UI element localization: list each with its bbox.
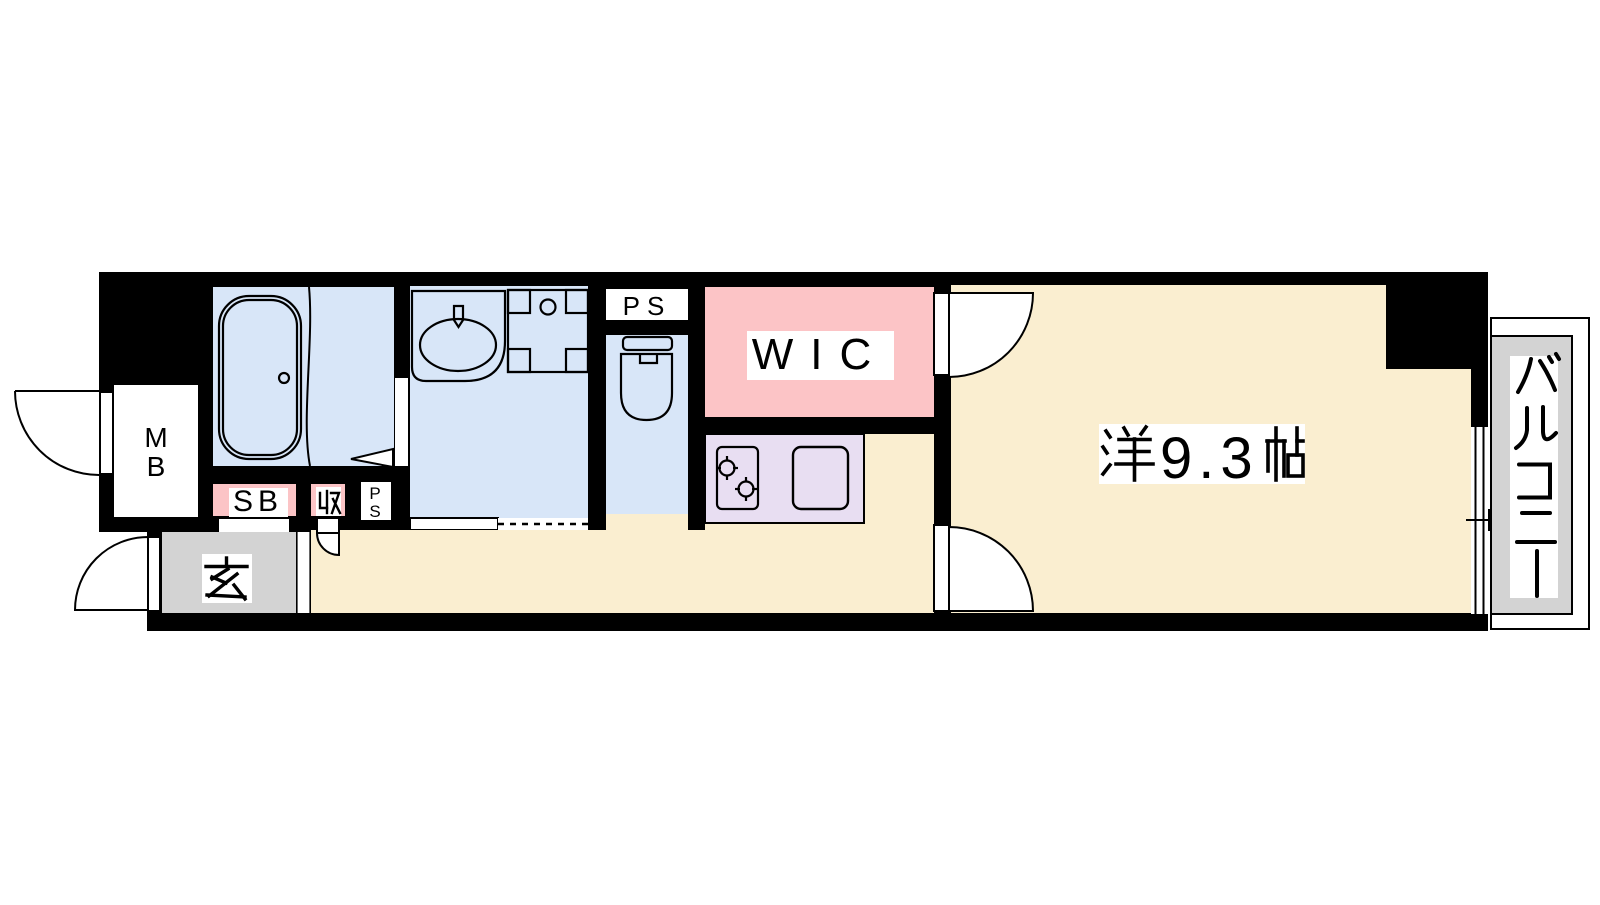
svg-text:M: M: [144, 422, 167, 453]
svg-text:WIC: WIC: [752, 330, 889, 379]
svg-text:PS: PS: [623, 291, 672, 321]
svg-text:S: S: [369, 502, 380, 521]
svg-text:9.3: 9.3: [1160, 426, 1259, 491]
svg-text:SB: SB: [233, 485, 283, 518]
svg-text:P: P: [369, 484, 380, 503]
svg-text:B: B: [147, 451, 166, 482]
